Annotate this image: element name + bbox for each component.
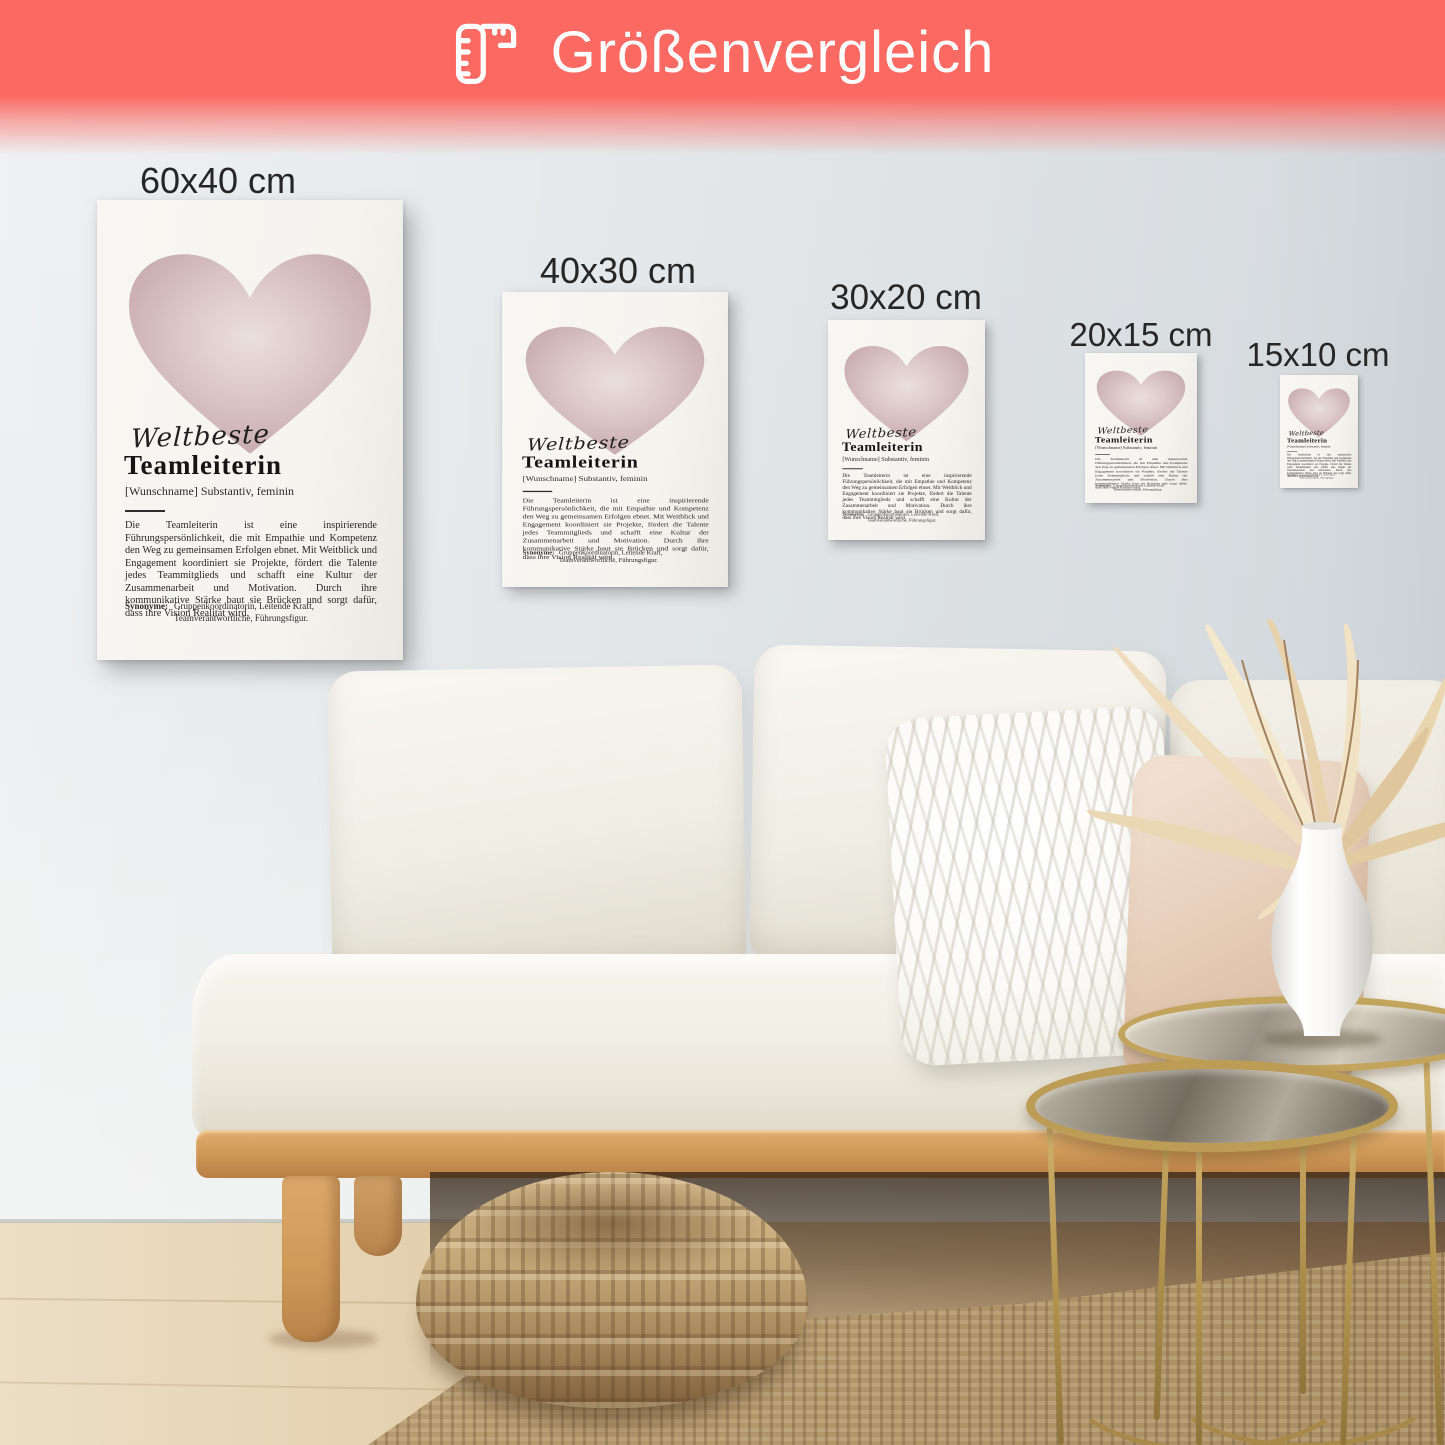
- size-label-15x10: 15x10 cm: [1246, 336, 1389, 374]
- synonyms-label: Synonyme:: [125, 601, 168, 624]
- poster-subtitle: [Wunschname] Substantiv, feminin: [523, 474, 648, 484]
- poster-60x40: Weltbeste Teamleiterin [Wunschname] Subs…: [97, 200, 403, 660]
- synonyms-label: Synonyme:: [842, 512, 864, 523]
- poster-divider: [842, 468, 863, 469]
- synonyms-label: Synonyme:: [523, 549, 555, 564]
- poster-title: Teamleiterin: [124, 450, 282, 481]
- synonyms-text: Gruppenkoordinatorin, Leitende Kraft, Te…: [559, 549, 707, 564]
- poster-title: Teamleiterin: [1287, 436, 1327, 444]
- white-vase: [1252, 812, 1392, 1052]
- poster-synonyms: Synonyme: Gruppenkoordinatorin, Leitende…: [1095, 484, 1188, 492]
- synonyms-label: Synonyme:: [1287, 474, 1298, 480]
- poster-title: Teamleiterin: [522, 452, 639, 472]
- product-size-comparison-image: Größenvergleich 60x40 cm 40x30 cm 30x20 …: [0, 0, 1445, 1445]
- size-label-20x15: 20x15 cm: [1069, 316, 1212, 354]
- poster-title: Teamleiterin: [842, 440, 923, 455]
- poster-subtitle: [Wunschname] Substantiv, feminin: [125, 484, 294, 499]
- sofa-back-cushion-left: [327, 664, 746, 983]
- synonyms-label: Synonyme:: [1095, 484, 1111, 492]
- banner-title: Größenvergleich: [551, 19, 995, 86]
- size-label-30x20: 30x20 cm: [830, 278, 982, 318]
- poster-subtitle: [Wunschname] Substantiv, feminin: [1287, 445, 1330, 449]
- poster-30x20: Weltbeste Teamleiterin [Wunschname] Subs…: [828, 320, 985, 540]
- poster-20x15: Weltbeste Teamleiterin [Wunschname] Subs…: [1085, 353, 1197, 503]
- size-comparison-banner: Größenvergleich: [0, 0, 1445, 160]
- size-label-60x40: 60x40 cm: [140, 160, 296, 202]
- synonyms-text: Gruppenkoordinatorin, Leitende Kraft, Te…: [174, 601, 374, 624]
- banner-content: Größenvergleich: [0, 0, 1445, 104]
- gold-side-table-short-top: [1026, 1060, 1398, 1152]
- synonyms-text: Gruppenkoordinatorin, Leitende Kraft, Te…: [1300, 474, 1351, 480]
- poster-divider: [523, 491, 553, 492]
- poster-synonyms: Synonyme: Gruppenkoordinatorin, Leitende…: [842, 512, 973, 523]
- poster-15x10: Weltbeste Teamleiterin [Wunschname] Subs…: [1280, 375, 1358, 488]
- synonyms-text: Gruppenkoordinatorin, Leitende Kraft, Te…: [1113, 484, 1186, 492]
- table-base-arc: [1058, 1300, 1358, 1445]
- poster-divider: [1095, 454, 1110, 455]
- size-label-40x30: 40x30 cm: [540, 250, 696, 292]
- poster-subtitle: [Wunschname] Substantiv, feminin: [842, 456, 929, 463]
- poster-synonyms: Synonyme: Gruppenkoordinatorin, Leitende…: [523, 549, 711, 564]
- poster-title: Teamleiterin: [1095, 435, 1153, 445]
- poster-synonyms: Synonyme: Gruppenkoordinatorin, Leitende…: [125, 601, 380, 624]
- sofa-leg-back: [354, 1176, 402, 1256]
- folding-ruler-icon: [451, 15, 525, 89]
- synonyms-text: Gruppenkoordinatorin, Leitende Kraft, Te…: [868, 512, 971, 523]
- poster-subtitle: [Wunschname] Substantiv, feminin: [1095, 446, 1157, 451]
- sofa-leg-front: [282, 1176, 340, 1342]
- poster-synonyms: Synonyme: Gruppenkoordinatorin, Leitende…: [1287, 474, 1352, 480]
- poster-divider: [125, 510, 165, 512]
- poster-40x30: Weltbeste Teamleiterin [Wunschname] Subs…: [502, 292, 728, 587]
